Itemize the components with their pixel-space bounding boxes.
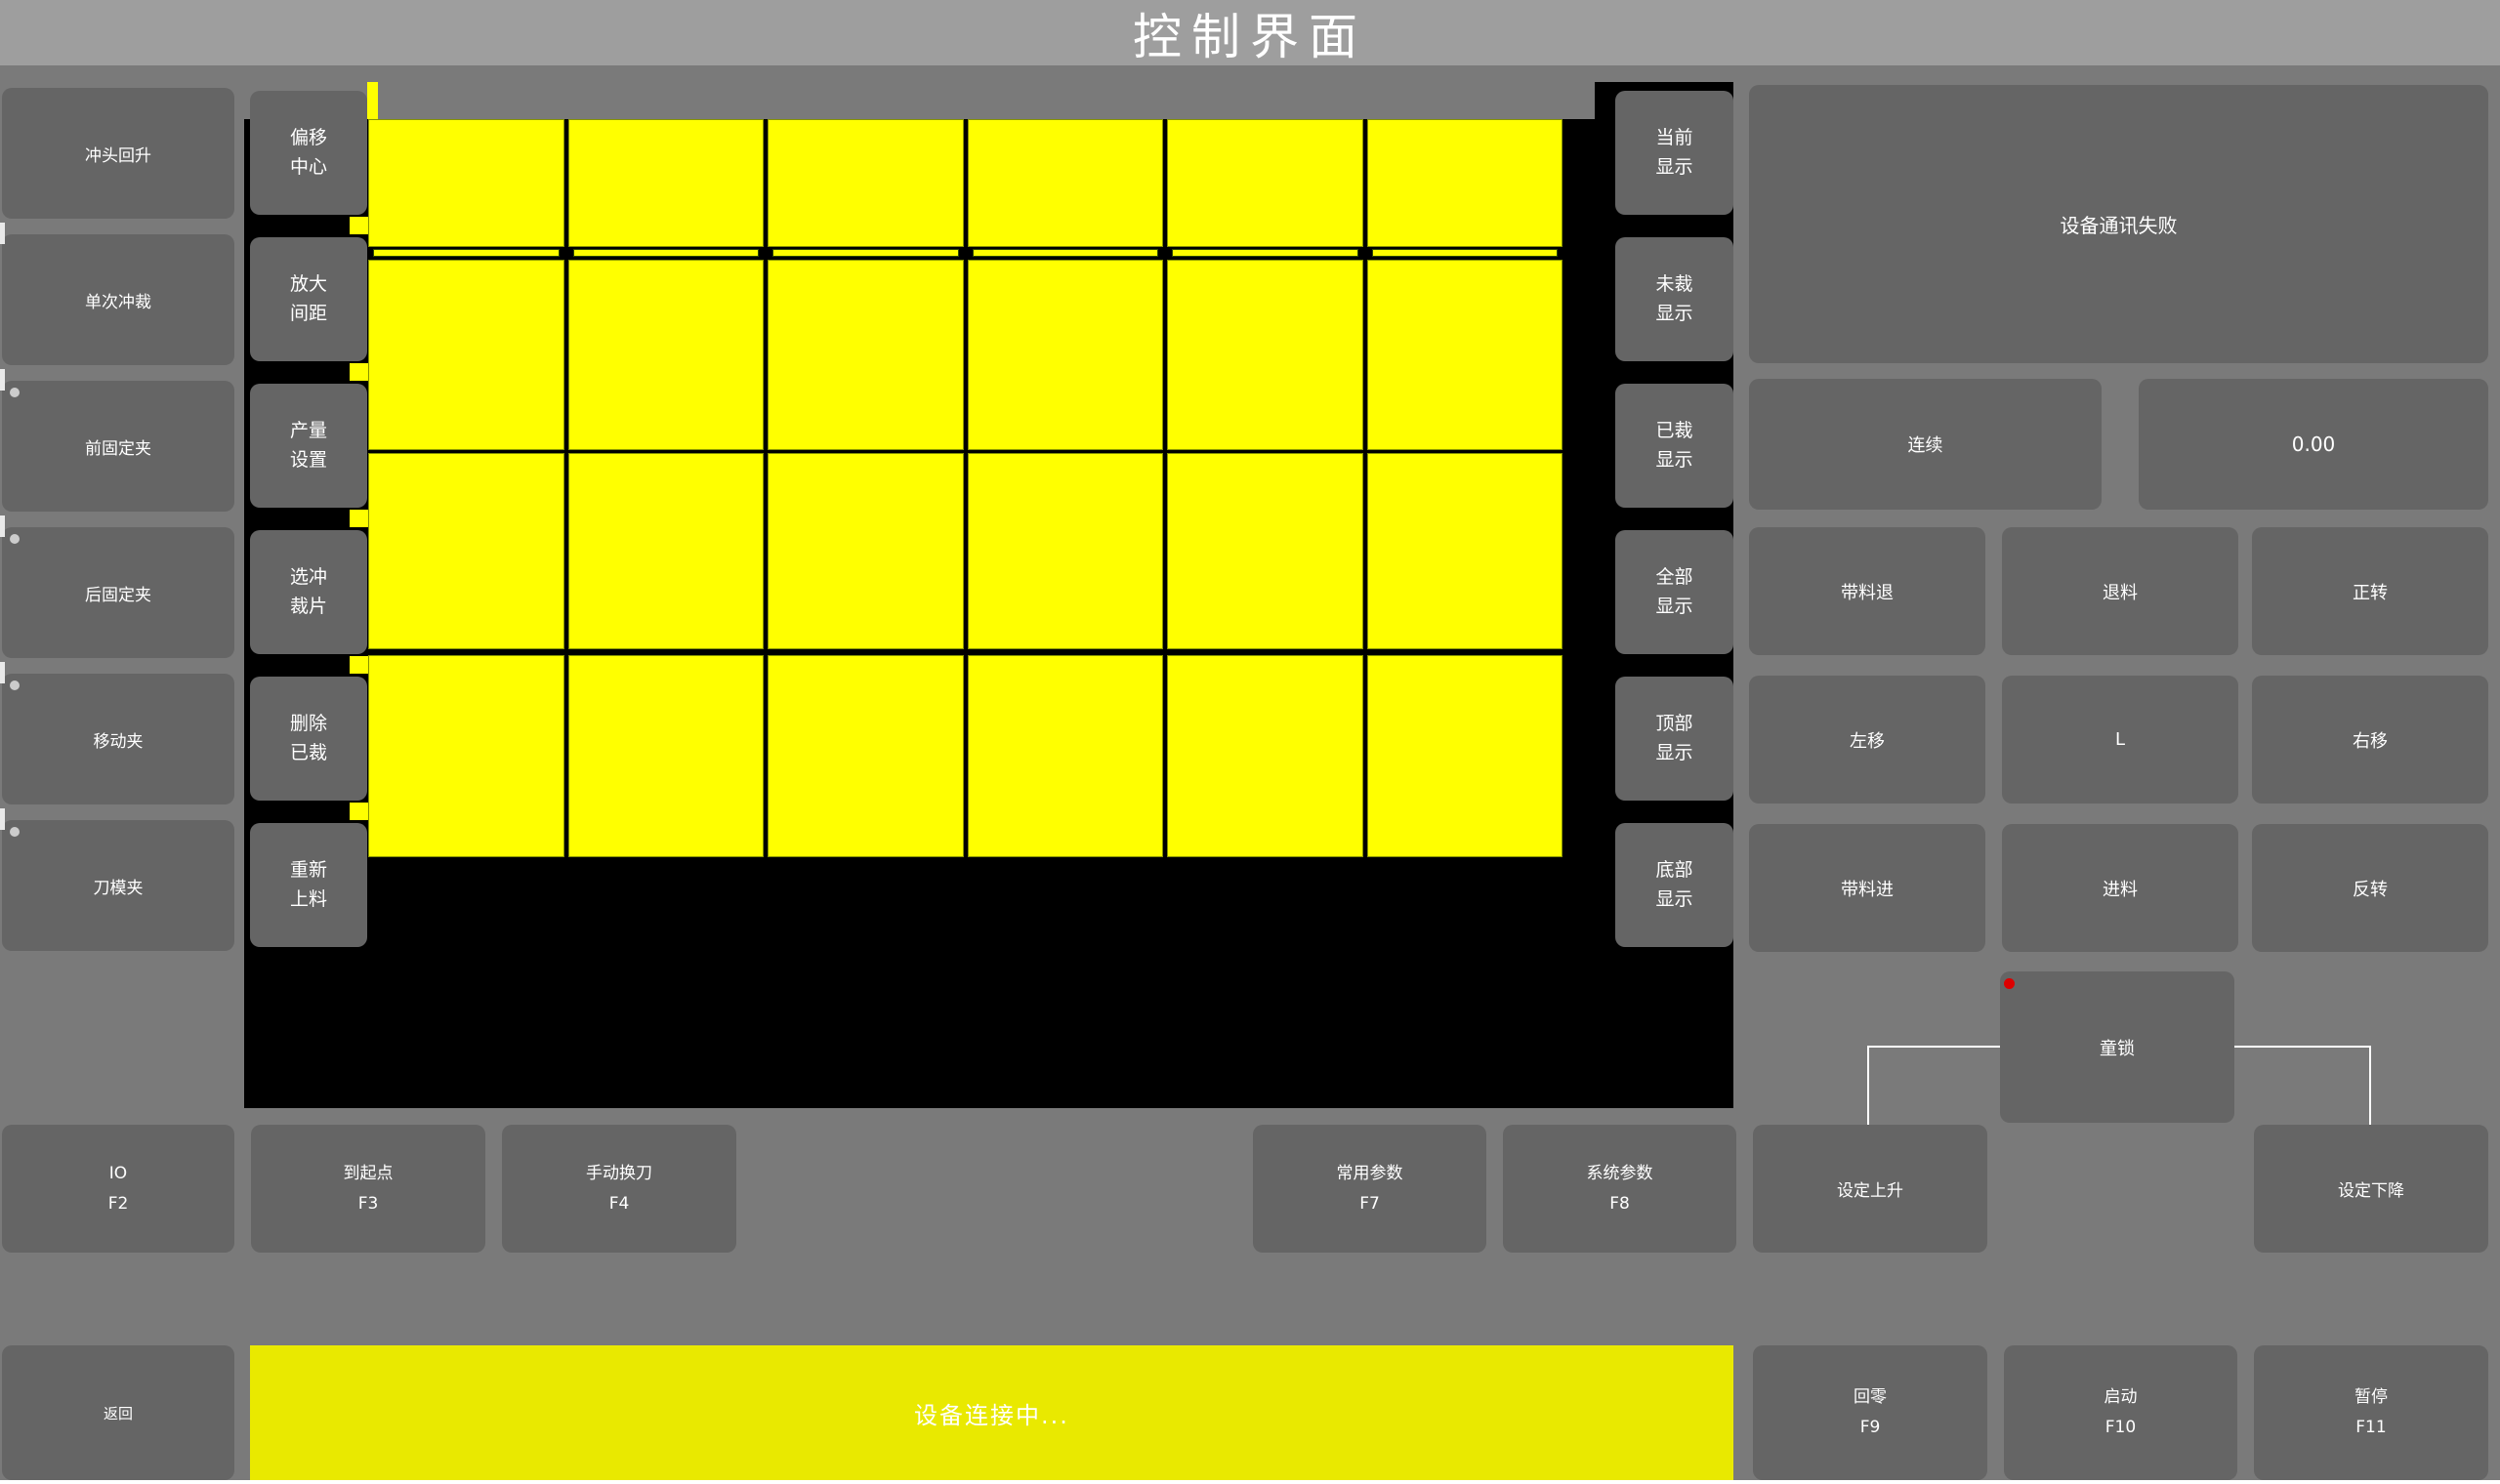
button-label: 当前 — [1655, 124, 1692, 152]
view-top-button[interactable]: 顶部 显示 — [1615, 677, 1733, 801]
nest-piece[interactable] — [368, 453, 564, 649]
enlarge-spacing-button[interactable]: 放大 间距 — [250, 237, 367, 361]
io-button[interactable]: IO F2 — [2, 1125, 234, 1253]
nest-left-tab — [350, 363, 368, 381]
feed-button[interactable]: 进料 — [2002, 824, 2238, 952]
nest-piece[interactable] — [1167, 655, 1363, 857]
fkey-label: F2 — [108, 1189, 129, 1219]
common-params-button[interactable]: 常用参数 F7 — [1253, 1125, 1486, 1253]
nest-piece[interactable] — [568, 119, 765, 247]
view-current-button[interactable]: 当前 显示 — [1615, 91, 1733, 215]
bracket-line — [2369, 1046, 2371, 1129]
button-label: 选冲 — [290, 563, 327, 592]
connection-status-bar: 设备连接中... — [250, 1345, 1733, 1480]
rear-fixed-clamp-button[interactable]: 后固定夹 — [2, 527, 234, 658]
canvas-top-margin — [244, 82, 1595, 119]
page-title: 控制界面 — [1133, 0, 1367, 68]
nest-piece[interactable] — [768, 119, 964, 247]
button-label: 全部 — [1655, 563, 1692, 592]
start-button[interactable]: 启动 F10 — [2004, 1345, 2237, 1480]
button-label: 显示 — [1655, 300, 1692, 328]
nest-piece[interactable] — [368, 119, 564, 247]
button-label: 删除 — [290, 710, 327, 738]
nest-strip[interactable] — [573, 249, 760, 257]
button-label: 未裁 — [1655, 270, 1692, 299]
edge-tab — [0, 369, 5, 391]
button-label: 返回 — [104, 1403, 133, 1423]
edge-tab — [0, 223, 5, 244]
fkey-label: F7 — [1359, 1189, 1380, 1219]
button-label: 偏移 — [290, 124, 327, 152]
edge-tab — [0, 515, 5, 537]
reload-material-button[interactable]: 重新 上料 — [250, 823, 367, 947]
edge-tab — [0, 808, 5, 830]
nest-piece[interactable] — [968, 655, 1164, 857]
button-label: 右移 — [2353, 727, 2388, 753]
nest-piece[interactable] — [368, 260, 564, 450]
back-button[interactable]: 返回 — [2, 1345, 234, 1480]
single-punch-button[interactable]: 单次冲裁 — [2, 234, 234, 365]
fkey-label: F9 — [1860, 1413, 1881, 1443]
nest-piece-row — [368, 453, 1562, 649]
nest-strip[interactable] — [772, 249, 959, 257]
nesting-canvas — [244, 82, 1733, 1108]
nest-piece[interactable] — [768, 453, 964, 649]
button-label: 启动 — [2104, 1382, 2138, 1413]
button-label: 设定上升 — [1837, 1176, 1903, 1201]
button-label: 带料退 — [1841, 579, 1894, 604]
button-label: 单次冲裁 — [85, 288, 151, 312]
button-label: 带料进 — [1841, 876, 1894, 901]
system-params-button[interactable]: 系统参数 F8 — [1503, 1125, 1736, 1253]
button-label: 反转 — [2353, 876, 2388, 901]
connection-text: 设备连接中... — [914, 1396, 1069, 1430]
indicator-dot-icon — [10, 534, 20, 544]
fkey-label: F8 — [1609, 1189, 1630, 1219]
button-label: 进料 — [2103, 876, 2138, 901]
button-label: 重新 — [290, 856, 327, 885]
nest-piece[interactable] — [768, 655, 964, 857]
nest-piece[interactable] — [1367, 119, 1563, 247]
view-uncut-button[interactable]: 未裁 显示 — [1615, 237, 1733, 361]
nest-strip[interactable] — [1172, 249, 1358, 257]
continuous-mode-button[interactable]: 连续 — [1749, 379, 2102, 510]
output-settings-button[interactable]: 产量 设置 — [250, 384, 367, 508]
button-label: 中心 — [290, 153, 327, 182]
button-label: 显示 — [1655, 593, 1692, 621]
fkey-label: F3 — [358, 1189, 379, 1219]
pause-button[interactable]: 暂停 F11 — [2254, 1345, 2488, 1480]
edge-tab — [0, 662, 5, 683]
nest-piece[interactable] — [568, 453, 765, 649]
nest-corner-tab — [367, 82, 378, 119]
unload-button[interactable]: 退料 — [2002, 527, 2238, 655]
nest-piece-row — [368, 119, 1562, 247]
nest-strip[interactable] — [973, 249, 1159, 257]
select-piece-button[interactable]: 选冲 裁片 — [250, 530, 367, 654]
button-label: 显示 — [1655, 739, 1692, 767]
button-label: 前固定夹 — [85, 434, 151, 459]
nest-piece[interactable] — [1367, 260, 1563, 450]
nest-left-tab — [350, 656, 368, 674]
nest-left-tab — [350, 217, 368, 234]
nest-piece[interactable] — [568, 655, 765, 857]
status-text: 设备通讯失败 — [2061, 210, 2178, 238]
punch-raise-button[interactable]: 冲头回升 — [2, 88, 234, 219]
button-label: 正转 — [2353, 579, 2388, 604]
button-label: 顶部 — [1655, 710, 1692, 738]
bracket-line — [1867, 1046, 1869, 1129]
nest-piece-row — [368, 655, 1562, 857]
reverse-rotate-button[interactable]: 反转 — [2252, 824, 2488, 952]
nest-piece[interactable] — [968, 119, 1164, 247]
button-label: 冲头回升 — [85, 142, 151, 166]
button-label: 左移 — [1850, 727, 1885, 753]
button-label: 显示 — [1655, 446, 1692, 474]
home-zero-button[interactable]: 回零 F9 — [1753, 1345, 1987, 1480]
set-lower-button[interactable]: 设定下降 — [2254, 1125, 2488, 1253]
button-label: 暂停 — [2354, 1382, 2388, 1413]
forward-rotate-button[interactable]: 正转 — [2252, 527, 2488, 655]
button-label: 回零 — [1854, 1382, 1887, 1413]
button-label: 常用参数 — [1337, 1159, 1403, 1189]
child-lock-button[interactable]: 童锁 — [2000, 971, 2234, 1123]
nest-left-tab — [350, 803, 368, 820]
button-label: IO — [109, 1159, 127, 1189]
l-button[interactable]: L — [2002, 676, 2238, 804]
nest-piece-row — [368, 260, 1562, 450]
set-rise-button[interactable]: 设定上升 — [1753, 1125, 1987, 1253]
button-label: 显示 — [1655, 886, 1692, 914]
device-status-message: 设备通讯失败 — [1749, 85, 2488, 363]
nest-piece[interactable] — [1367, 655, 1563, 857]
button-label: 刀模夹 — [94, 874, 144, 898]
offset-center-button[interactable]: 偏移 中心 — [250, 91, 367, 215]
nest-piece[interactable] — [1167, 260, 1363, 450]
bottom-edge — [0, 1480, 2500, 1484]
button-label: 连续 — [1908, 432, 1943, 457]
nest-piece[interactable] — [1167, 119, 1363, 247]
button-label: 显示 — [1655, 153, 1692, 182]
nest-strip[interactable] — [1372, 249, 1559, 257]
button-label: 裁片 — [290, 593, 327, 621]
button-label: 已裁 — [1655, 417, 1692, 445]
nest-strip[interactable] — [373, 249, 560, 257]
button-label: 童锁 — [2100, 1035, 2135, 1060]
nest-grid — [368, 119, 1562, 857]
view-bottom-button[interactable]: 底部 显示 — [1615, 823, 1733, 947]
nest-piece[interactable] — [768, 260, 964, 450]
value-text: 0.00 — [2292, 433, 2336, 456]
nest-piece[interactable] — [568, 260, 765, 450]
button-label: 后固定夹 — [85, 581, 151, 605]
indicator-dot-icon — [10, 388, 20, 397]
nest-strip-row — [368, 249, 1562, 257]
nest-piece[interactable] — [968, 260, 1164, 450]
value-display: 0.00 — [2139, 379, 2488, 510]
strip-feed-button[interactable]: 带料进 — [1749, 824, 1985, 952]
fkey-label: F4 — [609, 1189, 630, 1219]
title-bar: 控制界面 — [0, 0, 2500, 65]
control-interface: 控制界面 冲头回升 单次冲裁 前固定夹 后固定夹 移动夹 刀模夹 — [0, 0, 2500, 1484]
button-label: 手动换刀 — [586, 1159, 652, 1189]
button-label: 产量 — [290, 417, 327, 445]
button-label: 设置 — [290, 446, 327, 474]
fkey-label: F11 — [2355, 1413, 2386, 1443]
button-label: 已裁 — [290, 739, 327, 767]
strip-back-button[interactable]: 带料退 — [1749, 527, 1985, 655]
go-origin-button[interactable]: 到起点 F3 — [251, 1125, 485, 1253]
nest-piece[interactable] — [368, 655, 564, 857]
indicator-dot-icon — [10, 680, 20, 690]
button-label: 设定下降 — [2338, 1176, 2404, 1201]
move-right-button[interactable]: 右移 — [2252, 676, 2488, 804]
manual-tool-change-button[interactable]: 手动换刀 F4 — [502, 1125, 736, 1253]
indicator-dot-icon — [10, 827, 20, 837]
button-label: 间距 — [290, 300, 327, 328]
button-label: 底部 — [1655, 856, 1692, 885]
front-fixed-clamp-button[interactable]: 前固定夹 — [2, 381, 234, 512]
button-label: 移动夹 — [94, 727, 144, 752]
button-label: 到起点 — [344, 1159, 394, 1189]
delete-cut-button[interactable]: 删除 已裁 — [250, 677, 367, 801]
fkey-label: F10 — [2105, 1413, 2136, 1443]
button-label: 系统参数 — [1587, 1159, 1653, 1189]
moving-clamp-button[interactable]: 移动夹 — [2, 674, 234, 804]
nest-piece[interactable] — [1167, 453, 1363, 649]
nest-left-tab — [350, 510, 368, 527]
view-all-button[interactable]: 全部 显示 — [1615, 530, 1733, 654]
button-label: L — [2115, 729, 2125, 750]
move-left-button[interactable]: 左移 — [1749, 676, 1985, 804]
button-label: 上料 — [290, 886, 327, 914]
alert-dot-icon — [2004, 978, 2015, 989]
die-clamp-button[interactable]: 刀模夹 — [2, 820, 234, 951]
nest-piece[interactable] — [1367, 453, 1563, 649]
view-cut-button[interactable]: 已裁 显示 — [1615, 384, 1733, 508]
nest-piece[interactable] — [968, 453, 1164, 649]
button-label: 退料 — [2103, 579, 2138, 604]
button-label: 放大 — [290, 270, 327, 299]
